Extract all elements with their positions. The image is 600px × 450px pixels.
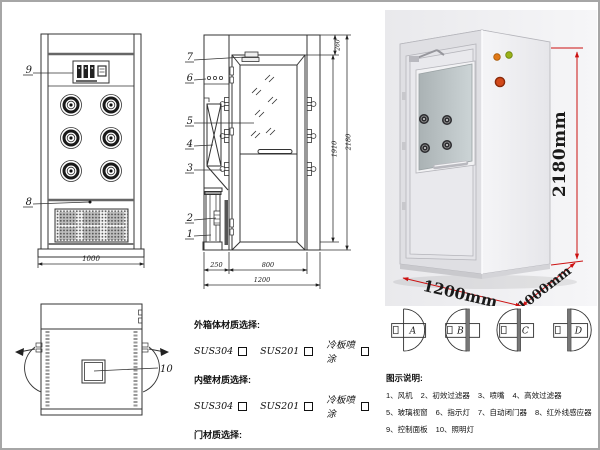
- material-option-label: SUS304: [194, 401, 233, 412]
- material-options-row: SUS304 SUS201 冷板喷涂: [194, 337, 382, 365]
- material-checkbox[interactable]: [361, 402, 369, 411]
- material-options-row: SUS304 SUS201 冷板喷涂: [194, 392, 382, 420]
- dim-1910-label: 1910: [331, 141, 339, 158]
- legend-item: 6、指示灯: [436, 407, 470, 418]
- material-option-label: SUS304: [194, 346, 233, 357]
- legend-row: 5、玻璃视窗 6、指示灯 7、自动闭门器 8、红外线感应器: [386, 407, 598, 418]
- material-checkbox[interactable]: [304, 402, 313, 411]
- callout-4-label: 4: [186, 139, 193, 150]
- legend-item: 7、自动闭门器: [478, 407, 527, 418]
- air-return-grille: [55, 209, 128, 242]
- door-type-icon-c: C: [496, 304, 540, 356]
- material-option-label: 冷板喷涂: [326, 337, 356, 365]
- top-view-drawing: 10: [15, 304, 173, 415]
- material-checkbox[interactable]: [361, 347, 369, 356]
- dim-1200-label: 1200: [254, 276, 271, 284]
- indicator-light-green: [506, 52, 513, 59]
- filter-side: [207, 104, 221, 166]
- dim-250-label: 250: [209, 261, 222, 269]
- callout-7-label: 7: [187, 52, 194, 63]
- door-side: [230, 52, 305, 250]
- emergency-button: [495, 77, 504, 86]
- door-type-label: A: [408, 326, 416, 337]
- material-checkbox[interactable]: [238, 402, 247, 411]
- legend-item: 4、高效过滤器: [513, 390, 562, 401]
- callout-3-label: 3: [187, 163, 193, 174]
- glass-hatch: [251, 75, 277, 138]
- legend-title: 图示说明:: [386, 372, 598, 384]
- door-type-icons: A B C D: [388, 304, 598, 356]
- legend-item: 1、风机: [386, 390, 413, 401]
- door-swing-left: [15, 343, 42, 392]
- nozzles-side: [220, 98, 316, 176]
- indicator-light-orange: [494, 54, 501, 61]
- callout-1-label: 1: [187, 229, 193, 240]
- legend-item: 5、玻璃视窗: [386, 407, 428, 418]
- photo-height-label: 2180mm: [550, 111, 570, 197]
- material-checkbox[interactable]: [304, 347, 313, 356]
- material-group-title: 外箱体材质选择:: [194, 318, 382, 331]
- cabinet: [400, 30, 550, 279]
- door-type-icon-b: B: [442, 304, 486, 356]
- spec-sheet-page: 1000 9 8: [0, 0, 600, 450]
- material-option-label: 冷板喷涂: [326, 392, 356, 420]
- front-width-dim-label: 1000: [82, 255, 100, 263]
- product-photo: 2180mm 1200mm 1000mm: [385, 10, 597, 306]
- legend-item: 10、照明灯: [436, 424, 474, 435]
- material-option-label: SUS201: [260, 401, 299, 412]
- legend-item: 3、喷嘴: [478, 390, 505, 401]
- legend-item: 2、初效过滤器: [421, 390, 470, 401]
- dim-2180-label: 2180: [345, 134, 353, 152]
- door-type-label: B: [456, 326, 464, 337]
- legend-section: A B C D 图示: [386, 304, 598, 441]
- legend-row: 9、控制面板 10、照明灯: [386, 424, 598, 435]
- material-checkbox[interactable]: [238, 347, 247, 356]
- callout-2-label: 2: [186, 213, 193, 224]
- callout-8-label: 8: [26, 197, 32, 208]
- legend-item: 9、控制面板: [386, 424, 428, 435]
- callout-10-label: 10: [160, 364, 173, 375]
- material-group-title: 内壁材质选择:: [194, 373, 382, 386]
- dim-260-label: 260: [335, 39, 342, 52]
- control-panel: [73, 61, 109, 83]
- callout-6-label: 6: [187, 73, 194, 84]
- callout-5-label: 5: [187, 116, 193, 127]
- material-group-title: 门材质选择:: [194, 428, 382, 441]
- callout-9-label: 9: [26, 65, 33, 76]
- legend-row: 1、风机 2、初效过滤器 3、喷嘴 4、高效过滤器: [386, 390, 598, 401]
- door-type-label: D: [574, 326, 583, 337]
- material-selection: 外箱体材质选择: SUS304 SUS201 冷板喷涂 内壁材质选择: SUS3…: [194, 318, 382, 450]
- door-type-label: C: [522, 326, 529, 337]
- door-type-icon-d: D: [550, 304, 594, 356]
- door-type-icon-a: A: [388, 304, 432, 356]
- material-option-label: SUS201: [260, 346, 299, 357]
- side-view-drawing: 250 800 1200 260 1910 2180: [185, 35, 353, 289]
- legend-item: 8、红外线感应器: [535, 407, 592, 418]
- dim-800-label: 800: [262, 261, 274, 269]
- front-view-drawing: 1000 9 8: [23, 34, 144, 268]
- ceiling-lamp: [82, 360, 105, 383]
- nozzles-front: [61, 95, 122, 182]
